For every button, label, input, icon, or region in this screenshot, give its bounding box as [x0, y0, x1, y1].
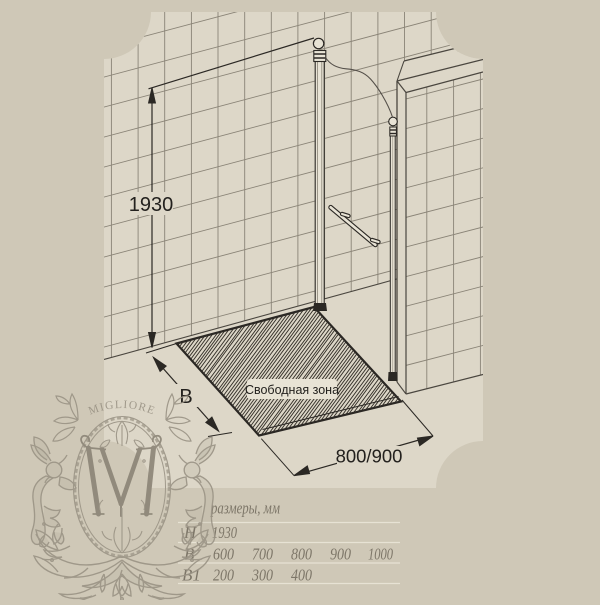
svg-text:200: 200 — [213, 566, 234, 585]
svg-text:600: 600 — [213, 545, 234, 564]
svg-text:1930: 1930 — [129, 194, 174, 216]
svg-text:Свободная зона: Свободная зона — [245, 383, 339, 397]
svg-text:700: 700 — [252, 545, 273, 564]
svg-text:размеры, мм: размеры, мм — [210, 499, 280, 518]
svg-text:400: 400 — [291, 566, 312, 585]
svg-text:1930: 1930 — [212, 523, 237, 542]
svg-text:800/900: 800/900 — [336, 446, 403, 467]
svg-text:300: 300 — [251, 566, 273, 585]
svg-text:1000: 1000 — [368, 545, 393, 564]
svg-text:900: 900 — [330, 545, 351, 564]
svg-text:800: 800 — [291, 545, 312, 564]
